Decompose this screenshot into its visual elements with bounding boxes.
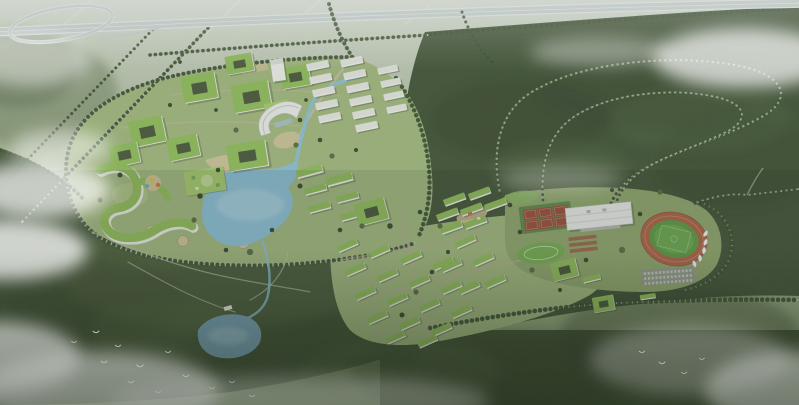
bottom-vignette xyxy=(0,250,799,405)
cloud-wisp xyxy=(530,37,670,67)
aerial-campus-rendering xyxy=(0,0,799,405)
cloud-wisp xyxy=(500,165,620,191)
aerial-rendering-stage xyxy=(0,0,799,405)
cloud xyxy=(10,130,110,166)
